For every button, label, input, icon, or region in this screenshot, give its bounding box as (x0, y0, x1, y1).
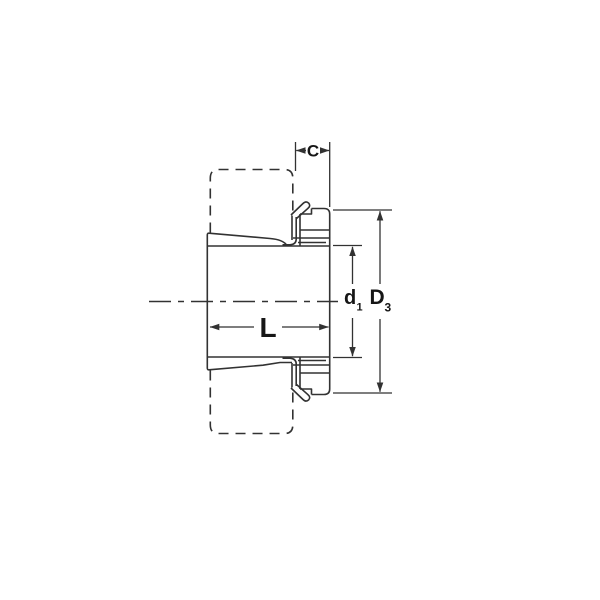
technical-drawing-page: C L d1 D3 (0, 0, 600, 600)
adapter-sleeve-drawing: C L d1 D3 (0, 0, 600, 600)
lockwasher-tab-bottom (291, 385, 310, 402)
bearing-ring-hidden-top (210, 170, 292, 233)
lockwasher-top (283, 216, 297, 245)
label-d1: d1 (344, 287, 363, 314)
locknut-face-lines-bottom (293, 361, 330, 374)
locknut-face-lines-top (293, 230, 330, 243)
label-c: C (307, 142, 319, 161)
label-l: L (259, 312, 276, 343)
bearing-ring-hidden-bottom (210, 371, 292, 434)
lockwasher-tab-top (291, 202, 310, 219)
dimensions (210, 142, 392, 393)
label-d3: D3 (370, 286, 392, 315)
